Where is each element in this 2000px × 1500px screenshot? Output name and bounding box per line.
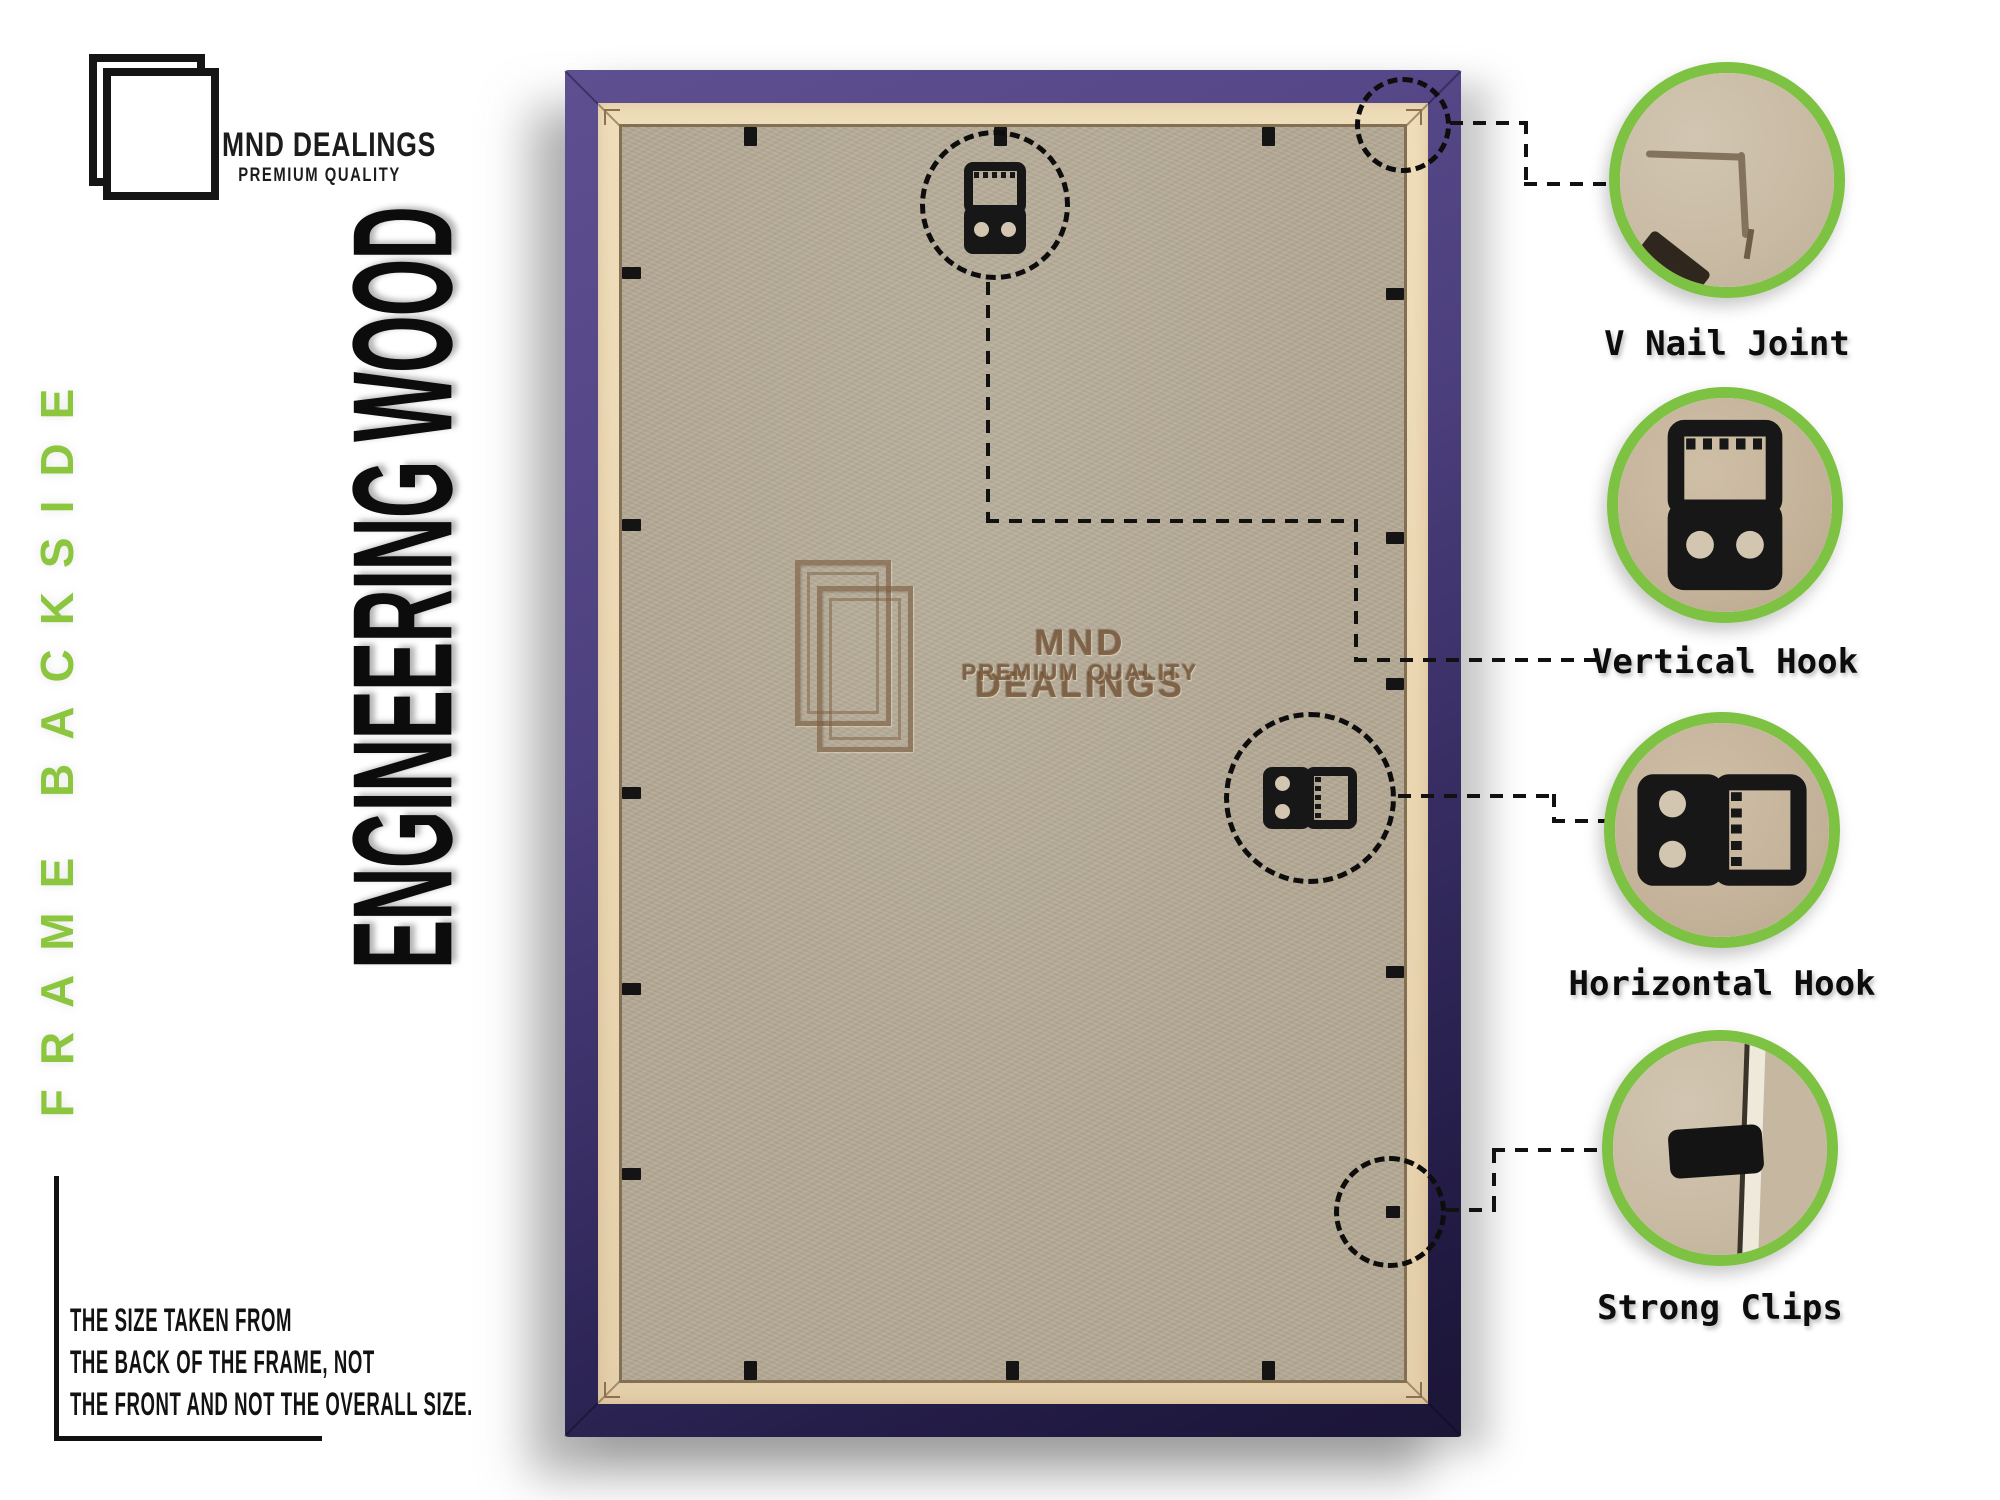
connector-v-nail — [1450, 121, 1528, 125]
connector-strong-clip — [1492, 1148, 1604, 1152]
callout-label-strong-clips: Strong Clips — [1505, 1288, 1935, 1328]
watermark: MND DEALINGS PREMIUM QUALITY — [795, 560, 1225, 770]
connector-strong-clip — [1446, 1208, 1496, 1212]
callout-strong-clips — [1602, 1030, 1838, 1266]
hook-hole — [1736, 531, 1764, 559]
frame-backside-label: FRAME BACKSIDE — [31, 329, 83, 1153]
connector-strong-clip — [1492, 1150, 1496, 1212]
connector-v-nail — [1524, 121, 1528, 185]
miter-joint-line — [1427, 1402, 1462, 1437]
size-note-line-3: THE FRONT AND NOT THE OVERALL SIZE. — [70, 1386, 473, 1423]
callout-label-vertical-hook: Vertical Hook — [1510, 642, 1940, 682]
product-infographic: { "brand": { "name": "MND DEALINGS", "ta… — [0, 0, 2000, 1500]
note-border-horizontal — [54, 1436, 322, 1441]
focus-circle-v-nail-joint — [1355, 77, 1451, 173]
note-border-vertical — [54, 1176, 59, 1440]
v-nail-corner-mark — [1406, 1382, 1422, 1398]
brand-name: MND DEALINGS — [222, 126, 425, 165]
hook-hole — [1686, 531, 1714, 559]
backing-clip — [622, 267, 641, 279]
double-frame-icon-inner — [829, 598, 901, 740]
connector-horizontal-hook — [1398, 794, 1556, 798]
hook-hole — [1659, 841, 1686, 868]
focus-circle-vertical-hook — [920, 130, 1070, 280]
brand-tagline: PREMIUM QUALITY — [222, 165, 417, 187]
callout-vertical-hook — [1607, 387, 1843, 623]
backing-clip — [1262, 1361, 1275, 1380]
connector-v-nail — [1524, 182, 1610, 186]
hook-buckle — [1713, 774, 1807, 886]
size-note-line-2: THE BACK OF THE FRAME, NOT — [70, 1344, 375, 1381]
double-frame-icon — [103, 68, 219, 200]
vertical-hook-icon — [1668, 420, 1783, 590]
focus-circle-strong-clip — [1334, 1156, 1446, 1268]
hook-plate — [1668, 501, 1783, 590]
backing-clip — [744, 1361, 757, 1380]
v-nail-corner-mark — [604, 109, 620, 125]
callout-horizontal-hook — [1604, 712, 1840, 948]
board-edge-shade — [1754, 1030, 1838, 1266]
size-note-line-1: THE SIZE TAKEN FROM — [70, 1302, 292, 1339]
callout-label-horizontal-hook: Horizontal Hook — [1507, 964, 1937, 1004]
material-label-text: ENGINEERING WOOD — [321, 207, 484, 969]
backing-clip — [1006, 1361, 1019, 1380]
backing-clip — [622, 1168, 641, 1180]
callout-label-v-nail-joint: V Nail Joint — [1512, 324, 1942, 364]
hook-teeth — [1731, 792, 1742, 868]
v-nail-corner-mark — [604, 1382, 620, 1398]
strong-clip-icon — [1667, 1123, 1764, 1179]
backing-clip — [1386, 532, 1404, 544]
connector-vertical-hook — [986, 282, 990, 523]
backing-clip — [1262, 127, 1275, 146]
connector-horizontal-hook — [1552, 819, 1608, 823]
backing-clip — [744, 127, 757, 146]
focus-circle-horizontal-hook — [1224, 712, 1396, 884]
double-frame-icon — [817, 586, 913, 752]
backing-clip — [1386, 288, 1404, 300]
horizontal-hook-icon — [1637, 774, 1806, 886]
callout-v-nail-joint — [1609, 62, 1845, 298]
connector-vertical-hook — [986, 519, 1358, 523]
material-label: ENGINEERING WOOD — [342, 208, 462, 968]
watermark-tagline: PREMIUM QUALITY — [935, 660, 1225, 686]
miter-joint-line — [564, 1402, 599, 1437]
hook-teeth — [1686, 438, 1764, 449]
hook-hole — [1659, 790, 1686, 817]
backing-clip — [622, 983, 641, 995]
backing-clip — [622, 787, 641, 799]
connector-vertical-hook — [1354, 519, 1358, 662]
hook-plate — [1637, 774, 1723, 886]
miter-joint-line — [564, 70, 599, 105]
backing-clip — [1386, 966, 1404, 978]
backing-clip — [622, 519, 641, 531]
backing-clip — [1386, 678, 1404, 690]
frame-backside-photo: MND DEALINGS PREMIUM QUALITY — [565, 70, 1461, 1437]
